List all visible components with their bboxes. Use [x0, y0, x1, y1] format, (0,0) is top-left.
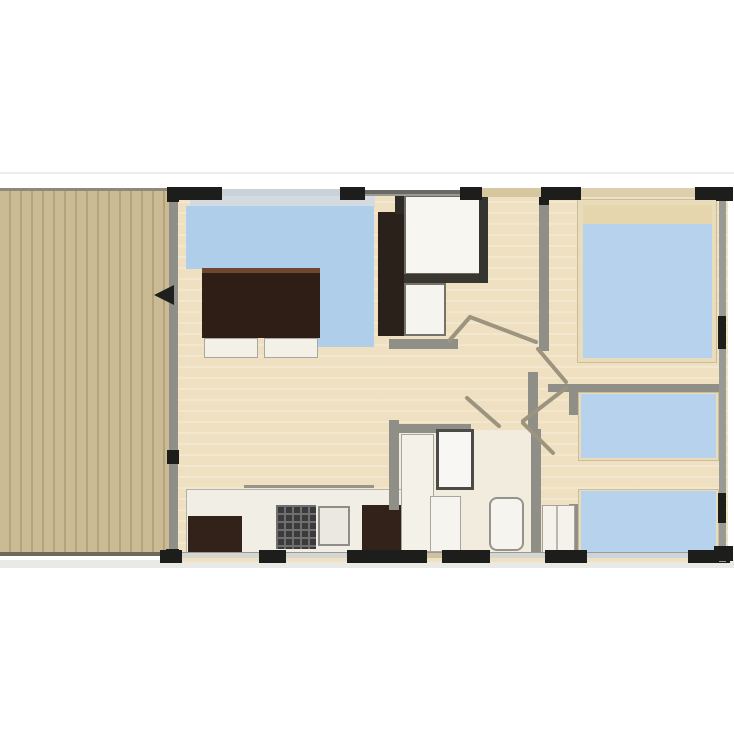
seat-cushion-right [264, 338, 318, 358]
wall-facade-black-bottom [166, 549, 179, 562]
terrace-entry-arrow [154, 285, 174, 305]
wall-bathroom-right [531, 429, 541, 558]
kitchen-cabinet-left [188, 516, 242, 554]
wall-bottom-gap-1 [182, 553, 259, 558]
entry-cabinet-base-band [404, 274, 486, 283]
terrace-top-edge [0, 188, 177, 191]
terrace-deck [0, 190, 177, 556]
bedroom2-closet [542, 505, 575, 554]
twin-bed-1-mattress [581, 394, 716, 458]
master-bed-pillows [583, 205, 712, 224]
wall-facade-black-mid [167, 450, 179, 464]
wall-bottom-black-5 [545, 550, 587, 563]
kitchen-stove [276, 505, 316, 549]
wall-bottom-black-4 [442, 550, 490, 563]
wall-top-window-tan [581, 188, 695, 197]
shower-cabin [436, 429, 474, 490]
wall-bottom-gap-3 [490, 553, 545, 558]
seat-cushion-left [204, 338, 258, 358]
corner-sofa-top [186, 206, 374, 269]
dining-table [202, 268, 320, 338]
wall-master-left [539, 190, 549, 351]
bedroom2-closet-divider [556, 506, 558, 553]
kitchen-counter-edge [244, 485, 374, 488]
wall-bottom-black-3 [347, 550, 427, 563]
twin-bed-2-mattress [581, 491, 716, 554]
wall-bottom-black-2 [259, 550, 286, 563]
wall-top-window-living [222, 189, 340, 196]
wall-right-black-low [718, 493, 726, 523]
tv-wardrobe-unit [378, 212, 404, 336]
wall-right-black-mid [718, 316, 726, 349]
bathroom-washbasin [430, 496, 461, 552]
wall-top-black-4 [541, 187, 581, 200]
wc-cabinet-block [404, 283, 446, 336]
wall-right-black-top [716, 187, 733, 201]
wall-hall-stub [528, 372, 538, 430]
wall-top-door-tan [482, 188, 541, 197]
wall-hall-left [479, 190, 488, 283]
entry-cabinet-block [404, 195, 482, 275]
wall-wc-bottom [389, 339, 458, 349]
toilet [489, 497, 524, 551]
floorplan-page [0, 0, 734, 735]
wall-facade-left [169, 190, 178, 562]
wall-facade-black-top [167, 189, 179, 202]
wall-right-black-bottom [714, 546, 733, 561]
terrace-bottom-edge [0, 552, 177, 556]
wall-top-black-3 [460, 187, 482, 200]
corner-sofa-right-arm [317, 269, 374, 347]
wall-top-thin-dark [365, 190, 460, 194]
wall-bottom-gap-2 [286, 553, 347, 558]
wall-bottom-window [587, 553, 688, 558]
wall-bathroom-left [389, 420, 399, 510]
kitchen-sink [318, 506, 350, 546]
page-hairline [0, 172, 734, 174]
master-bed-mattress [583, 224, 712, 358]
wall-top-black-2 [340, 187, 365, 200]
wall-bottom-entry-door [427, 553, 442, 558]
